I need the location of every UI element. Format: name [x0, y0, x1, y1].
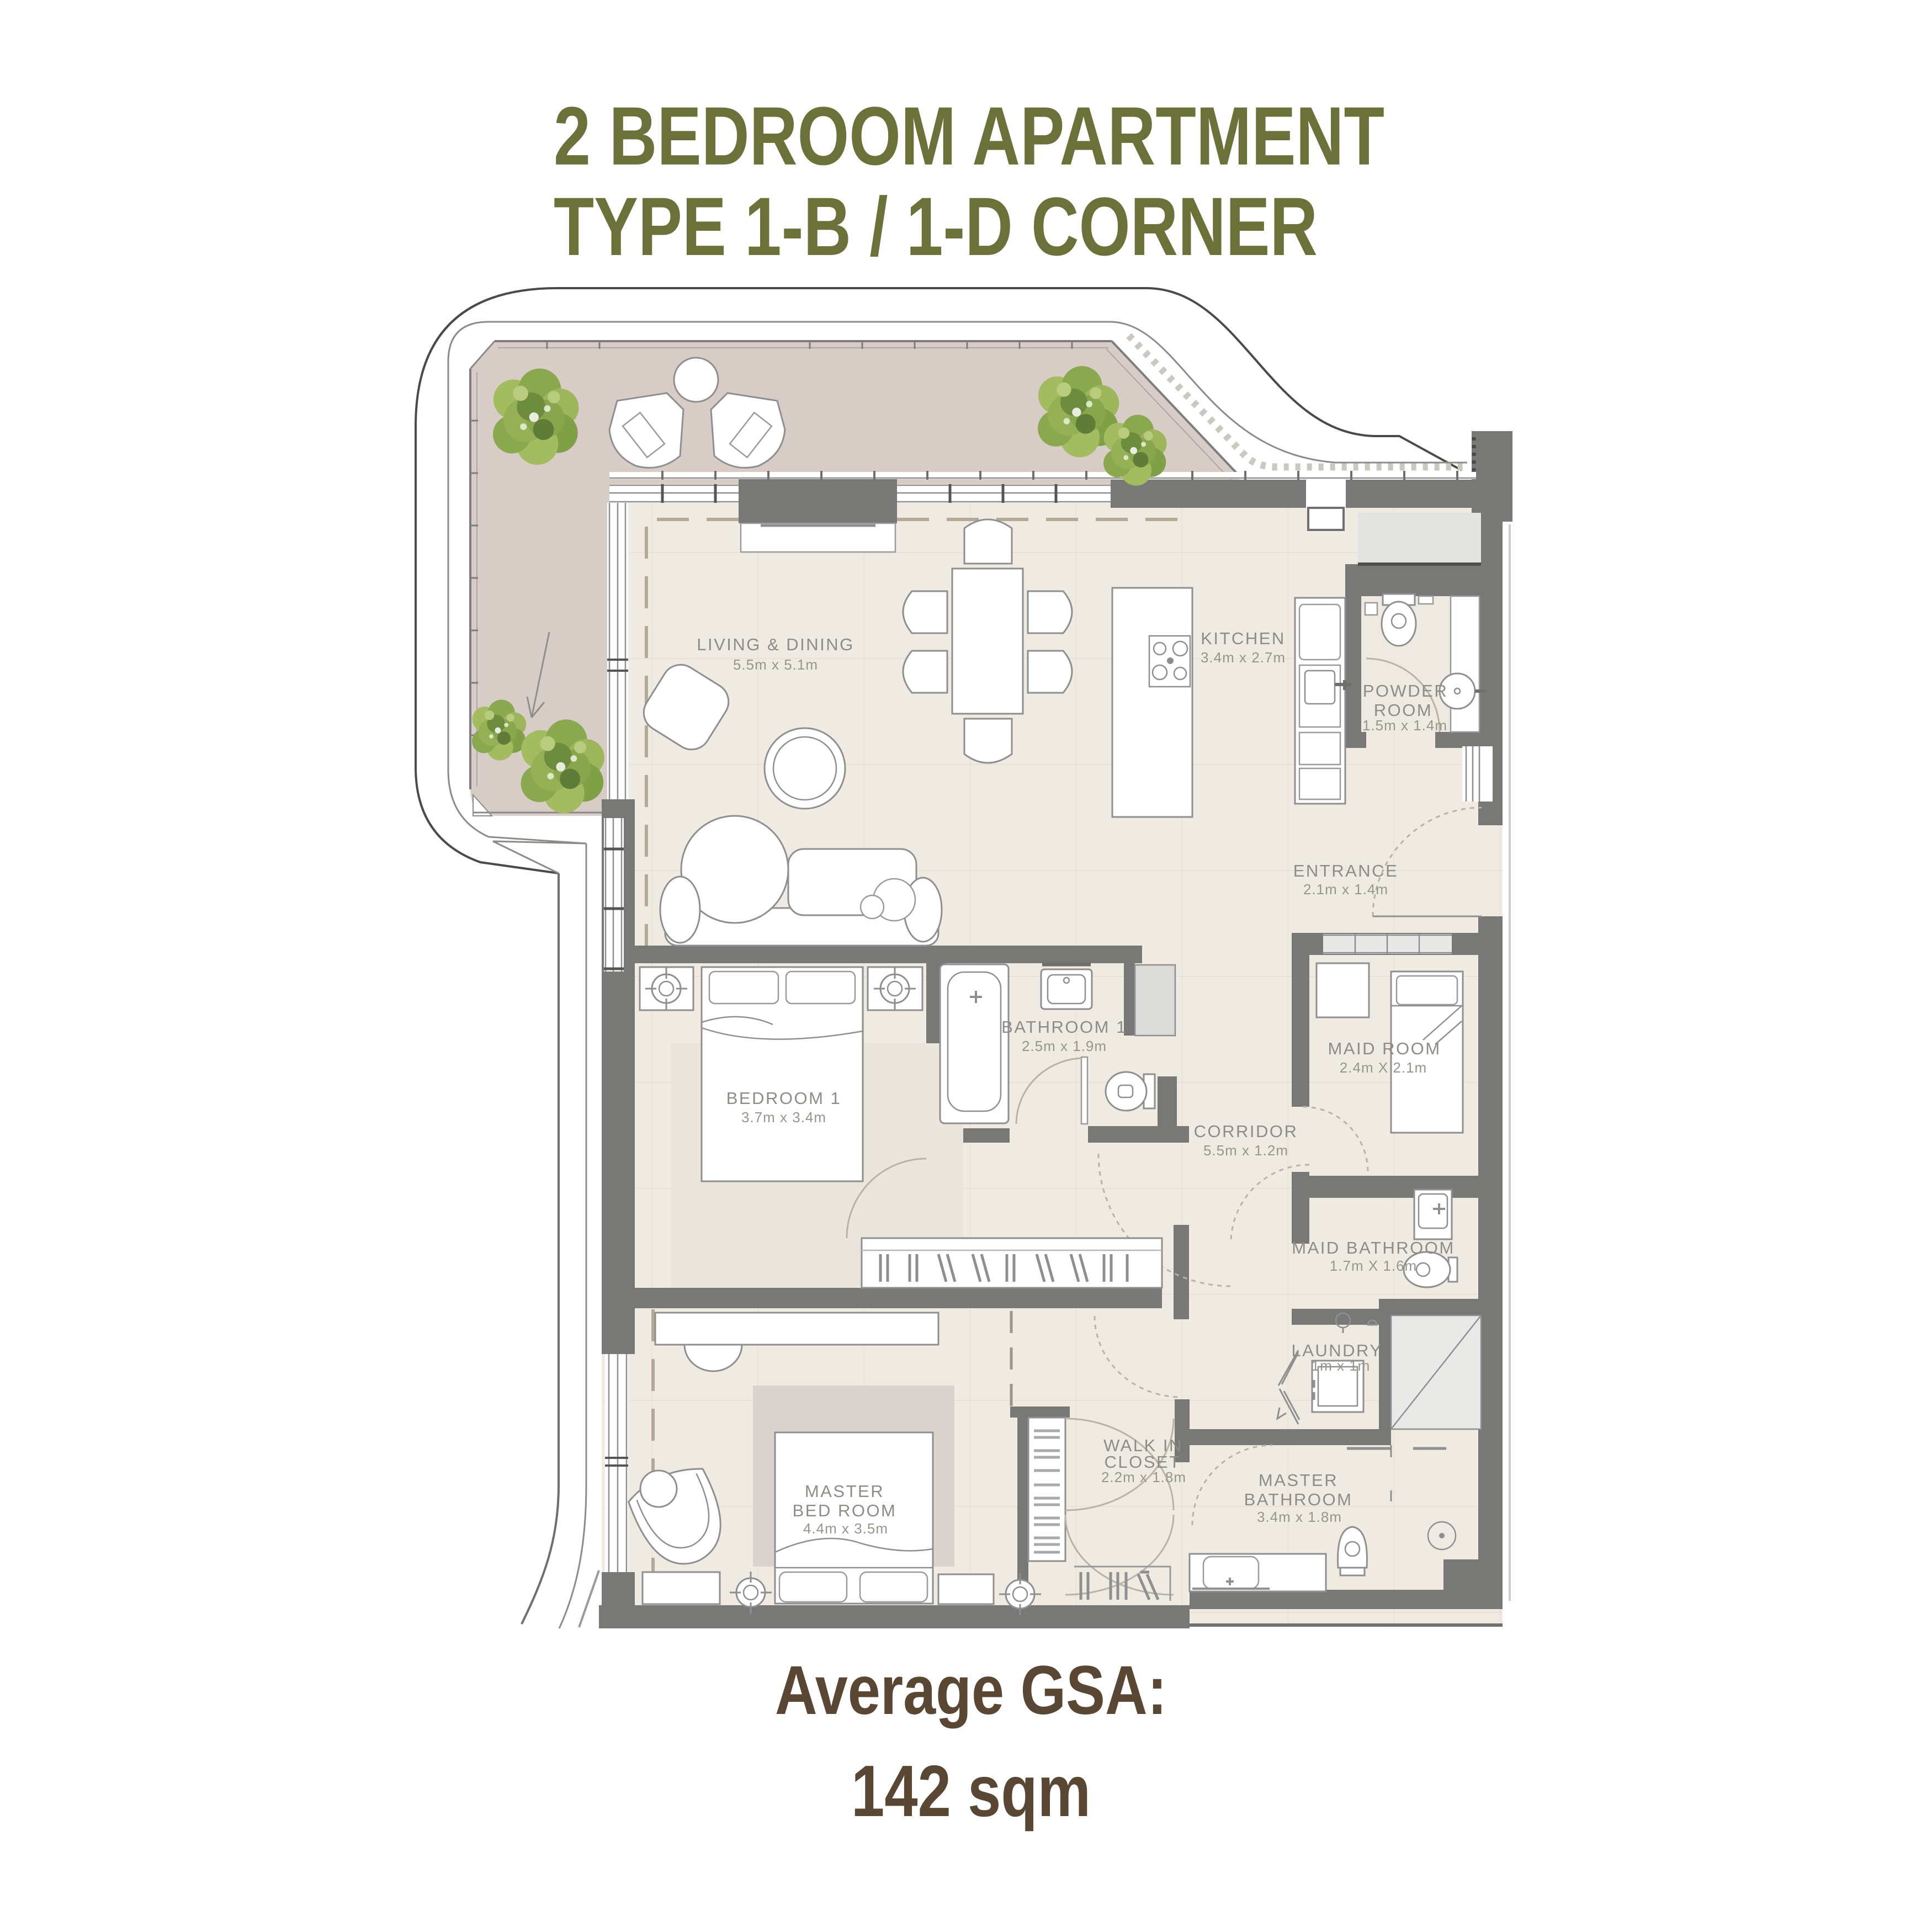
svg-text:MASTER: MASTER [1259, 1471, 1338, 1490]
svg-text:BATHROOM 1: BATHROOM 1 [1001, 1017, 1127, 1037]
svg-text:MASTER: MASTER [805, 1482, 884, 1501]
svg-text:142 sqm: 142 sqm [851, 1750, 1091, 1832]
svg-text:3.7m x 3.4m: 3.7m x 3.4m [741, 1109, 826, 1126]
svg-text:TYPE 1-B / 1-D CORNER: TYPE 1-B / 1-D CORNER [554, 180, 1318, 273]
svg-text:ENTRANCE: ENTRANCE [1293, 861, 1399, 880]
svg-text:LIVING & DINING: LIVING & DINING [697, 635, 854, 654]
svg-text:POWDER: POWDER [1363, 681, 1448, 700]
svg-text:Average GSA:: Average GSA: [775, 1652, 1167, 1729]
svg-text:2.2m x 1.8m: 2.2m x 1.8m [1101, 1469, 1186, 1485]
svg-text:2.4m X 2.1m: 2.4m X 2.1m [1340, 1059, 1427, 1076]
svg-text:CORRIDOR: CORRIDOR [1194, 1122, 1298, 1141]
svg-text:4.4m x 3.5m: 4.4m x 3.5m [803, 1520, 888, 1537]
svg-text:3.4m x 1.8m: 3.4m x 1.8m [1257, 1509, 1342, 1525]
svg-text:1.5m x 1.4m: 1.5m x 1.4m [1362, 717, 1447, 734]
svg-text:MAID BATHROOM: MAID BATHROOM [1292, 1238, 1455, 1257]
svg-text:1.7m X 1.6m: 1.7m X 1.6m [1330, 1257, 1417, 1274]
svg-text:KITCHEN: KITCHEN [1201, 629, 1286, 648]
svg-text:3.4m x 2.7m: 3.4m x 2.7m [1201, 649, 1286, 666]
svg-text:2.5m x 1.9m: 2.5m x 1.9m [1022, 1038, 1107, 1054]
svg-text:5.5m x 1.2m: 5.5m x 1.2m [1203, 1142, 1288, 1159]
svg-text:MAID ROOM: MAID ROOM [1328, 1039, 1441, 1058]
svg-text:2 BEDROOM APARTMENT: 2 BEDROOM APARTMENT [554, 89, 1384, 182]
svg-text:BED ROOM: BED ROOM [793, 1501, 897, 1520]
svg-text:2.1m x 1.4m: 2.1m x 1.4m [1303, 881, 1388, 898]
svg-text:BATHROOM: BATHROOM [1244, 1490, 1353, 1509]
svg-text:1m x 1m: 1m x 1m [1312, 1357, 1371, 1374]
svg-text:5.5m x 5.1m: 5.5m x 5.1m [733, 656, 818, 673]
svg-text:BEDROOM 1: BEDROOM 1 [726, 1089, 842, 1108]
